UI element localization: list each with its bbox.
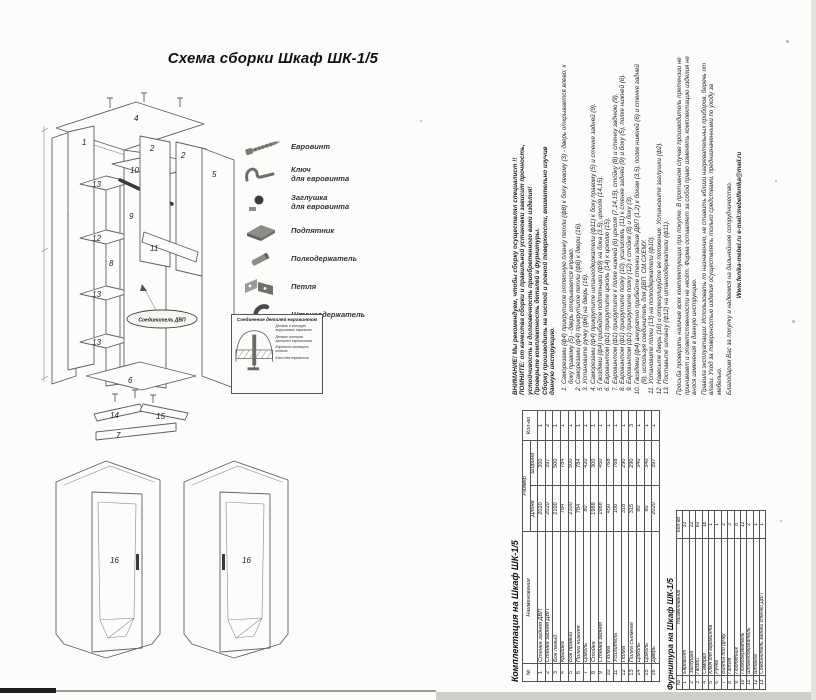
- footer-paragraph: Благодарим Вас за покупку и надеемся на …: [726, 55, 733, 395]
- col-header-name: Наименование: [523, 531, 538, 663]
- plug-icon: [243, 192, 283, 214]
- components-row: 15 Цоколь 80 340 1: [644, 411, 652, 682]
- cell-length: 100: [614, 486, 622, 531]
- cell-num: 9: [598, 664, 606, 682]
- legend-label: Петля: [283, 283, 316, 292]
- cell-qty: 1: [560, 411, 568, 441]
- svg-text:6: 6: [128, 376, 133, 385]
- legend-label: Подпятник: [283, 227, 334, 236]
- svg-text:1: 1: [82, 138, 86, 147]
- scan-artifact-bar: [0, 688, 56, 693]
- cell-qty: 1: [553, 411, 561, 441]
- scan-noise-dot: [786, 40, 789, 43]
- cell-qty: 1: [606, 411, 614, 441]
- part-bottom-shelf: 6: [86, 362, 196, 390]
- col-header-qty: Кол-во: [523, 411, 538, 441]
- cell-name: Дверь: [652, 531, 660, 663]
- col-header-width: Ширина: [530, 440, 538, 486]
- svg-text:8: 8: [109, 259, 114, 268]
- cell-num: 5: [568, 664, 576, 682]
- contacts-line: Www.fenika-mebel.ru e-mail:mebelfenika@m…: [736, 55, 743, 395]
- components-row: 13 Полка съемная 315 290 3: [629, 411, 637, 682]
- col-header-size: Размер: [523, 440, 531, 531]
- cell-num: 2: [545, 664, 553, 682]
- svg-text:2: 2: [180, 151, 186, 160]
- svg-text:2: 2: [149, 144, 155, 153]
- cell-num: 7: [583, 664, 591, 682]
- part-back-hdf-left: 1: [68, 126, 94, 370]
- cell-qty: 1: [591, 411, 599, 441]
- assembly-step: Навесьте дверь (16) и отрегулируйте ее п…: [656, 55, 663, 384]
- cell-num: 10: [606, 664, 614, 682]
- legend-label: Заглушка для евровинта: [283, 194, 349, 211]
- components-row: 8 Стойка 1988 300 1: [591, 411, 599, 682]
- assembly-step: Саморезами (ф4) прикрутите штангодержате…: [590, 55, 597, 384]
- cell-qty: 1: [614, 411, 622, 441]
- scan-edge: [811, 0, 816, 700]
- hardware-table-title: Фурнитура на Шкаф ШК-1/5: [666, 448, 675, 690]
- svg-text:12: 12: [92, 234, 101, 243]
- cell-width: 500: [568, 440, 576, 486]
- cell-length: 2100: [568, 486, 576, 531]
- cell-qty: 1: [538, 411, 546, 441]
- connection-diagram: [234, 324, 275, 376]
- cell-width: 784: [560, 440, 568, 486]
- connection-labels: Деталь в которую вкручивают евровинтДета…: [275, 324, 320, 376]
- svg-text:13: 13: [92, 290, 101, 299]
- cell-name: Бок правый: [568, 531, 576, 663]
- assembly-step: Евровинтом (ф1) прикрутите полку (10), у…: [619, 55, 626, 384]
- assembly-step: Установите ручку (ф6) на дверь (16).: [582, 55, 589, 384]
- cell-width: 450: [598, 440, 606, 486]
- scan-artifact-line: [56, 690, 436, 692]
- cell-qty: 1: [644, 411, 652, 441]
- intro-line: ПОМНИТЕ: от качества сборки и правильной…: [519, 55, 526, 395]
- cell-length: 318: [621, 486, 629, 531]
- cell-qty: 1: [583, 411, 591, 441]
- components-row: 6 Полка нижняя 784 784 1: [576, 411, 584, 682]
- cell-num: 6: [576, 664, 584, 682]
- cell-length: 315: [629, 486, 637, 531]
- assembly-instructions: ВНИМАНИЕ! Мы рекомендуем, чтобы сборку о…: [512, 55, 765, 395]
- components-row: 14 Цоколь 80 340 1: [636, 411, 644, 682]
- cell-width: 290: [629, 440, 637, 486]
- cell-width: 300: [591, 440, 599, 486]
- cell-length: 784: [576, 486, 584, 531]
- connection-label: Деталь которая крепится евровинтом: [276, 335, 320, 344]
- legend-item-hexkey: Ключ для евровинта: [243, 164, 421, 186]
- cell-qty: 1: [652, 411, 660, 441]
- svg-text:15: 15: [156, 412, 165, 421]
- part-plinth-14: 14: [94, 404, 143, 421]
- page-title: Схема сборки Шкаф ШК-1/5: [138, 50, 408, 67]
- legend-label: Ключ для евровинта: [283, 166, 349, 183]
- cell-length: 2020: [652, 486, 660, 531]
- svg-text:16: 16: [242, 556, 251, 565]
- intro-line: Сборку производить на чистой и ровной по…: [542, 55, 549, 395]
- wardrobe-right: 16: [184, 461, 288, 658]
- cell-length: 80: [583, 486, 591, 531]
- hinge-icon: [243, 276, 283, 298]
- cell-qty: 1: [598, 411, 606, 441]
- cell-width: 420: [583, 440, 591, 486]
- svg-text:13: 13: [92, 338, 101, 347]
- cell-num: 4: [560, 664, 568, 682]
- cell-name: Полка съемная: [629, 531, 637, 663]
- hardware-legend: Евровинт Ключ для евровинта Заглушка для…: [243, 136, 421, 332]
- cell-length: 2020: [545, 486, 553, 531]
- cell-width: 340: [644, 440, 652, 486]
- scan-noise-dot: [420, 120, 422, 122]
- cell-qty: 3: [629, 411, 637, 441]
- scan-artifact-band: [436, 692, 816, 700]
- connection-detail-box: Соединение деталей евровинтом Деталь в к…: [231, 314, 323, 394]
- cell-name: Полка нижняя: [576, 531, 584, 663]
- hardware-table: № Наименование Кол-во 1 Евровинт 33 2 З: [676, 510, 766, 690]
- shelfpin-icon: [243, 248, 283, 270]
- svg-text:13: 13: [92, 180, 101, 189]
- cell-num: 12: [621, 664, 629, 682]
- assembly-step: Установите полки (13) на полкодержатели …: [648, 55, 655, 384]
- part-right-side: 5: [202, 148, 234, 388]
- components-row: 3 Бок левый 2100 500 1: [553, 411, 561, 682]
- cell-qty: 1: [621, 411, 629, 441]
- components-row: 4 Крышка 784 784 1: [560, 411, 568, 682]
- cell-num: 14: [636, 664, 644, 682]
- cell-qty: 1: [568, 411, 576, 441]
- assembly-step: Евровинтом (ф1) прикрутите к полке нижне…: [612, 55, 619, 384]
- cell-width: 397: [545, 440, 553, 486]
- components-table: № Наименование Размер Кол-во Длина Ширин…: [522, 410, 660, 682]
- cell-qty: 1: [760, 511, 766, 539]
- assembly-steps: Саморезами (ф4) прикрутите отпятную план…: [561, 55, 671, 395]
- hexkey-icon: [243, 164, 283, 186]
- legend-label: Полкодержатель: [283, 255, 357, 264]
- cell-num: 13: [760, 675, 766, 689]
- components-row: 2 Стенка задняя ДВП 2020 397 2: [545, 411, 553, 682]
- part-stand: 8: [106, 182, 120, 386]
- footer-paragraph: Просьба проверить наличие всех комплекту…: [676, 55, 698, 395]
- assembly-step: Гвоздями (ф4) прибейте подпятники (ф9) н…: [597, 55, 604, 384]
- legend-label: Евровинт: [283, 143, 330, 152]
- cell-width: 397: [652, 440, 660, 486]
- components-row: 1 Стенка задняя ДВП 2020 350 1: [538, 411, 546, 682]
- cell-name: Цоколь: [636, 531, 644, 663]
- scan-noise-dot: [775, 180, 777, 182]
- instructions-footer: Просьба проверить наличие всех комплекту…: [676, 55, 733, 395]
- cell-width: 290: [621, 440, 629, 486]
- cell-width: 340: [636, 440, 644, 486]
- cell-name: Бок левый: [553, 531, 561, 663]
- cell-name: Полка: [606, 531, 614, 663]
- svg-text:7: 7: [116, 431, 121, 440]
- wardrobe-left: 16: [56, 461, 160, 658]
- legend-item-hinge: Петля: [243, 276, 421, 298]
- svg-text:10: 10: [130, 166, 139, 175]
- cell-name: Усилитель: [614, 531, 622, 663]
- cell-length: 80: [636, 486, 644, 531]
- scan-noise-dot: [792, 320, 795, 323]
- svg-text:5: 5: [212, 170, 217, 179]
- cell-width: 768: [614, 440, 622, 486]
- intro-line: данную инструкцию.: [549, 55, 556, 395]
- components-row: 7 Цоколь 80 420 1: [583, 411, 591, 682]
- footer-paragraph: Правила эксплуатации: Использовать по на…: [701, 55, 723, 395]
- door-handle-right-wardrobe: [222, 554, 225, 570]
- euroscrew-icon: [243, 136, 283, 158]
- cell-qty: 2: [545, 411, 553, 441]
- assembly-step: Поставьте штангу (ф12) на штангодержател…: [663, 55, 670, 384]
- intro-line: Проверьте комплектность деталей и фурнит…: [534, 55, 541, 395]
- cell-name: Стенка задняя ДВП: [538, 531, 546, 663]
- assembly-step: Саморезами (ф4) прикрутите петли (ф8) к …: [575, 55, 582, 384]
- page: Схема сборки Шкаф ШК-1/5 4 3 1 8: [0, 0, 816, 700]
- cell-name: Стенка задняя ДВП: [545, 531, 553, 663]
- part-plinth-15: 15: [140, 404, 188, 421]
- cell-name: Стойка: [591, 531, 599, 663]
- legend-item-footpad: Подпятник: [243, 220, 421, 242]
- cell-name: Цоколь: [583, 531, 591, 663]
- cell-num: 3: [553, 664, 561, 682]
- cell-width: 784: [576, 440, 584, 486]
- screw-marks-bottom: [112, 390, 156, 403]
- cell-name: Крышка: [560, 531, 568, 663]
- svg-text:11: 11: [150, 244, 158, 253]
- cell-num: 8: [591, 664, 599, 682]
- hardware-table-block: Фурнитура на Шкаф ШК-1/5 № Наименование …: [666, 448, 761, 690]
- cell-qty: 1: [636, 411, 644, 441]
- cell-num: 11: [614, 664, 622, 682]
- connection-label: Деталь в которую вкручивают евровинт: [276, 324, 320, 333]
- cell-num: 1: [538, 664, 546, 682]
- assembly-step: Саморезами (ф4) прикрутите отпятную план…: [561, 55, 576, 384]
- components-table-block: Комплектация на Шкаф ШК-1/5 № Наименован…: [510, 388, 670, 682]
- components-row: 9 Стенка задняя 1988 450 1: [598, 411, 606, 682]
- connection-label: Евровинт затянуть ключом: [276, 345, 320, 354]
- cell-name: Стенка задняя: [598, 531, 606, 663]
- instructions-intro: ВНИМАНИЕ! Мы рекомендуем, чтобы сборку о…: [512, 55, 557, 395]
- legend-item-euroscrew: Евровинт: [243, 136, 421, 158]
- legend-item-shelfpin: Полкодержатель: [243, 248, 421, 270]
- cell-name: Соединитель задней стенки ДВП: [760, 538, 766, 675]
- components-row: 11 Усилитель 100 768 1: [614, 411, 622, 682]
- legend-item-plug: Заглушка для евровинта: [243, 192, 421, 214]
- cell-num: 13: [629, 664, 637, 682]
- components-row: 10 Полка 450 768 1: [606, 411, 614, 682]
- cell-qty: 1: [576, 411, 584, 441]
- svg-text:14: 14: [110, 411, 119, 420]
- svg-text:9: 9: [129, 212, 134, 221]
- cell-length: 1988: [598, 486, 606, 531]
- scan-noise-dot: [780, 520, 782, 522]
- svg-text:4: 4: [134, 114, 139, 123]
- components-row: 16 Дверь 2020 397 1: [652, 411, 660, 682]
- hardware-row: 13 Соединитель задней стенки ДВП 1: [760, 511, 766, 690]
- cell-length: 2020: [538, 486, 546, 531]
- cell-name: Полка: [621, 531, 629, 663]
- exploded-diagram: 4 3 1 8 13 12 13: [40, 92, 270, 507]
- cell-num: 16: [652, 664, 660, 682]
- connection-box-title: Соединение деталей евровинтом: [234, 317, 320, 322]
- cell-length: 2100: [553, 486, 561, 531]
- cell-width: 768: [606, 440, 614, 486]
- assembly-step: Гвоздями (ф4) аккуратно прибейте стенки …: [634, 55, 649, 384]
- assembly-step: Евровинтом (ф1) прикрутите цоколь (14) к…: [604, 55, 611, 384]
- cell-num: 15: [644, 664, 652, 682]
- cell-width: 500: [553, 440, 561, 486]
- cell-length: 450: [606, 486, 614, 531]
- svg-text:16: 16: [110, 556, 119, 565]
- cell-length: 784: [560, 486, 568, 531]
- components-row: 5 Бок правый 2100 500 1: [568, 411, 576, 682]
- col-header-length: Длина: [530, 486, 538, 531]
- cell-name: Цоколь: [644, 531, 652, 663]
- dimension-line: [41, 126, 48, 382]
- connection-label: Ключ для евровинта: [276, 356, 320, 360]
- door-handle-left-wardrobe: [136, 554, 139, 570]
- cell-width: 350: [538, 440, 546, 486]
- assembled-wardrobes: 16 16: [48, 448, 298, 693]
- components-row: 12 Полка 318 290 1: [621, 411, 629, 682]
- cell-length: 1988: [591, 486, 599, 531]
- part-plinth-7: 7: [96, 423, 176, 440]
- components-table-title: Комплектация на Шкаф ШК-1/5: [510, 388, 520, 682]
- footpad-icon: [243, 220, 283, 242]
- assembly-step: Евровинтом (ф1) прикрутите полку (12) к …: [626, 55, 633, 384]
- svg-text:Соединитель ДВП: Соединитель ДВП: [138, 318, 186, 324]
- col-header-num: №: [523, 664, 538, 682]
- cell-length: 80: [644, 486, 652, 531]
